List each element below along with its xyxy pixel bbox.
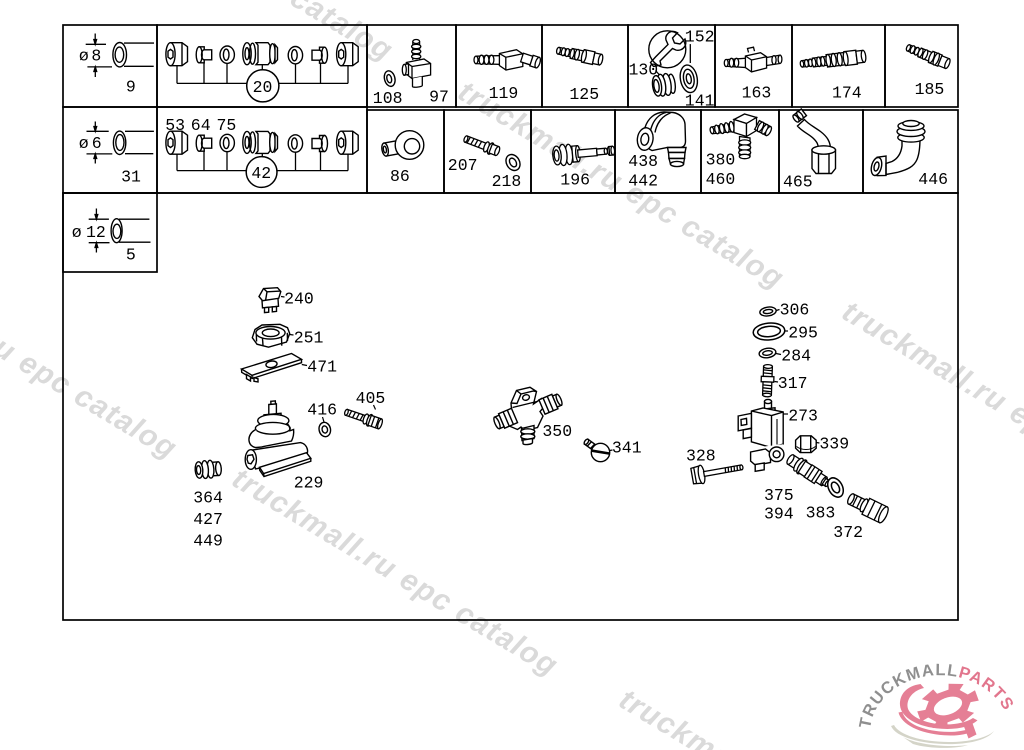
svg-text:460: 460 [706, 170, 736, 189]
svg-text:ø: ø [72, 223, 82, 242]
svg-text:31: 31 [121, 167, 141, 186]
svg-text:truckmall.ru epc catalog: truckmall.ru epc catalog [0, 245, 183, 466]
svg-text:341: 341 [612, 439, 642, 458]
svg-text:229: 229 [294, 474, 324, 493]
svg-text:196: 196 [560, 171, 590, 190]
svg-text:306: 306 [780, 301, 810, 320]
svg-text:75: 75 [217, 116, 237, 135]
svg-text:97: 97 [429, 88, 449, 107]
svg-text:6: 6 [92, 134, 102, 153]
svg-text:438: 438 [628, 152, 658, 171]
svg-text:273: 273 [788, 407, 818, 426]
svg-text:141: 141 [685, 92, 715, 111]
svg-text:20: 20 [253, 78, 273, 97]
svg-text:446: 446 [918, 170, 948, 189]
svg-text:119: 119 [489, 84, 519, 103]
svg-text:125: 125 [569, 85, 599, 104]
svg-text:405: 405 [356, 389, 386, 408]
svg-text:383: 383 [806, 504, 836, 523]
svg-text:339: 339 [819, 435, 849, 454]
svg-text:8: 8 [91, 47, 101, 66]
svg-text:163: 163 [742, 84, 772, 103]
svg-text:207: 207 [448, 156, 478, 175]
svg-text:108: 108 [373, 89, 403, 108]
svg-text:12: 12 [86, 223, 106, 242]
svg-text:328: 328 [686, 447, 716, 466]
svg-text:86: 86 [390, 167, 410, 186]
svg-text:284: 284 [781, 347, 811, 366]
svg-text:240: 240 [284, 290, 314, 309]
svg-text:ø: ø [79, 47, 89, 66]
svg-text:251: 251 [294, 329, 324, 348]
svg-text:truckmall.ru epc catalog: truckmall.ru epc catalog [226, 462, 564, 683]
svg-text:truckmall.ru epc catalog: truckmall.ru epc catalog [836, 295, 1024, 516]
svg-text:465: 465 [783, 173, 813, 192]
svg-text:471: 471 [307, 358, 337, 377]
svg-text:152: 152 [685, 28, 715, 47]
svg-text:372: 372 [833, 523, 863, 542]
svg-text:427: 427 [193, 510, 223, 529]
svg-text:218: 218 [492, 172, 522, 191]
svg-text:ø: ø [79, 134, 89, 153]
svg-text:42: 42 [251, 164, 271, 183]
svg-text:64: 64 [191, 116, 211, 135]
svg-text:350: 350 [542, 422, 572, 441]
svg-text:416: 416 [307, 401, 337, 420]
svg-text:364: 364 [193, 489, 223, 508]
svg-text:295: 295 [788, 324, 818, 343]
svg-text:174: 174 [832, 84, 862, 103]
svg-text:394: 394 [764, 505, 794, 524]
svg-text:442: 442 [628, 172, 658, 191]
svg-text:380: 380 [706, 151, 736, 170]
svg-text:317: 317 [778, 374, 808, 393]
svg-text:9: 9 [126, 77, 136, 96]
svg-text:375: 375 [764, 486, 794, 505]
svg-text:185: 185 [915, 80, 945, 99]
svg-text:449: 449 [193, 532, 223, 551]
svg-text:5: 5 [126, 246, 136, 265]
